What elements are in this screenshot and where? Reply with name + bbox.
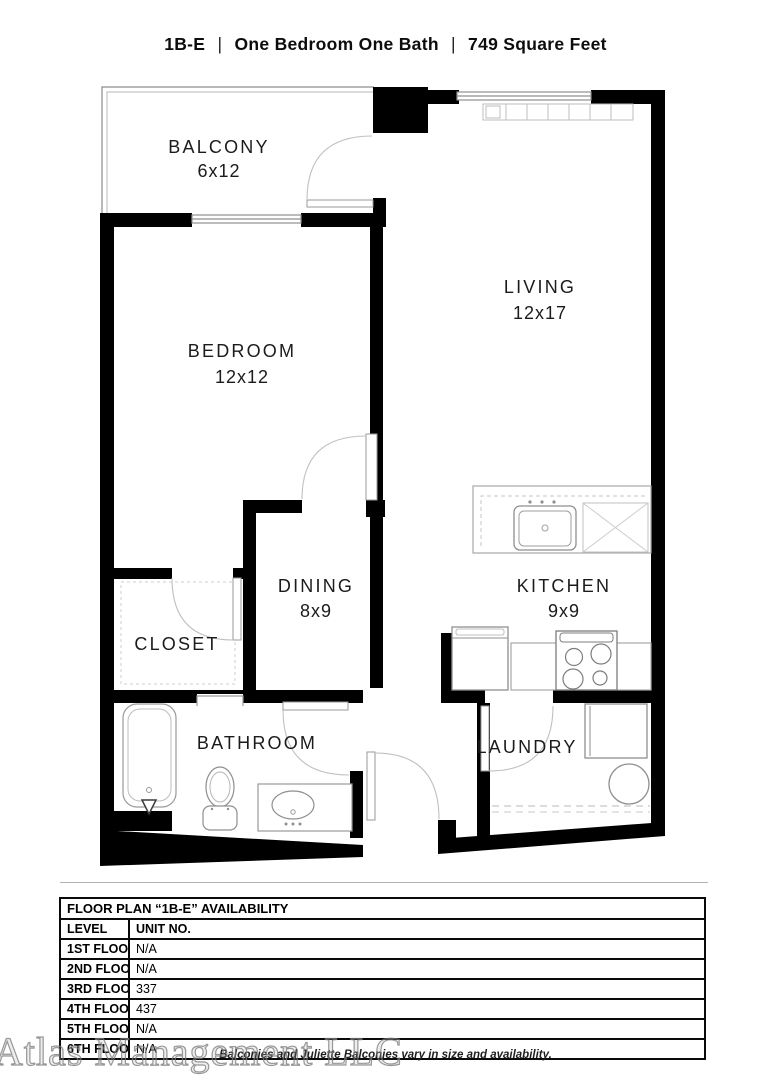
floor-plan-page: 1B-E | One Bedroom One Bath | 749 Square… <box>0 0 771 1080</box>
level-cell: 3RD FLOOR <box>60 979 129 999</box>
table-title-row: FLOOR PLAN “1B-E” AVAILABILITY <box>60 898 705 919</box>
room-label-bathroom: BATHROOM <box>197 733 317 753</box>
table-header-row: LEVEL UNIT NO. <box>60 919 705 939</box>
table-row: 5TH FLOOR N/A <box>60 1019 705 1039</box>
closet-shelf-lines <box>121 582 235 684</box>
table-row: 2ND FLOOR N/A <box>60 959 705 979</box>
level-cell: 1ST FLOOR <box>60 939 129 959</box>
availability-table: FLOOR PLAN “1B-E” AVAILABILITY LEVEL UNI… <box>59 897 706 1060</box>
wall <box>553 690 651 703</box>
stove <box>556 631 617 690</box>
unit-cell: N/A <box>129 959 705 979</box>
wall-closet <box>243 500 256 690</box>
column-header-unit: UNIT NO. <box>129 919 705 939</box>
room-dims-living: 12x17 <box>513 303 567 323</box>
wall <box>114 568 172 579</box>
closet-door <box>172 578 241 640</box>
wall <box>443 690 485 703</box>
column-header-level: LEVEL <box>60 919 129 939</box>
wall <box>373 90 459 104</box>
room-label-balcony: BALCONY <box>168 137 269 157</box>
room-dims-balcony: 6x12 <box>197 161 240 181</box>
room-label-dining: DINING <box>278 576 354 596</box>
balcony-door <box>307 136 373 207</box>
room-label-bedroom: BEDROOM <box>188 341 296 361</box>
room-dims-kitchen: 9x9 <box>548 601 580 621</box>
footer-disclaimer: Balconies and Juliette Balconies vary in… <box>0 1049 771 1061</box>
unit-cell: N/A <box>129 939 705 959</box>
walls <box>100 87 665 866</box>
wall-left <box>100 213 114 831</box>
room-label-living: LIVING <box>504 277 576 297</box>
bathroom-niche <box>197 694 243 706</box>
divider-rule <box>60 882 708 883</box>
wall-tub-step <box>114 811 172 831</box>
refrigerator <box>452 627 508 690</box>
bedroom-door <box>302 434 377 500</box>
bathtub <box>123 704 176 814</box>
room-dims-bedroom: 12x12 <box>215 367 269 387</box>
wall <box>373 198 386 227</box>
doors <box>172 136 553 820</box>
room-label-kitchen: KITCHEN <box>517 576 611 596</box>
laundry-fixtures <box>492 704 650 812</box>
table-row: 3RD FLOOR 337 <box>60 979 705 999</box>
level-cell: 5TH FLOOR <box>60 1019 129 1039</box>
unit-cell: N/A <box>129 1019 705 1039</box>
unit-cell: 337 <box>129 979 705 999</box>
dryer <box>609 764 649 804</box>
dishwasher <box>583 503 648 552</box>
wall-slanted-bathroom <box>100 830 363 866</box>
entry-door <box>367 752 439 820</box>
vanity-sink <box>258 784 352 831</box>
toilet <box>203 767 237 830</box>
room-label-closet: CLOSET <box>134 634 219 654</box>
room-label-laundry: LAUNDRY <box>476 737 577 757</box>
room-dims-dining: 8x9 <box>300 601 332 621</box>
level-cell: 2ND FLOOR <box>60 959 129 979</box>
unit-cell: 437 <box>129 999 705 1019</box>
table-row: 1ST FLOOR N/A <box>60 939 705 959</box>
table-row: 4TH FLOOR 437 <box>60 999 705 1019</box>
level-cell: 4TH FLOOR <box>60 999 129 1019</box>
washer <box>585 704 647 758</box>
wall-jamb <box>366 500 385 517</box>
wall <box>233 568 256 579</box>
wall-right <box>651 90 665 823</box>
window-bench <box>483 104 633 120</box>
table-title: FLOOR PLAN “1B-E” AVAILABILITY <box>60 898 705 919</box>
wall-slanted-laundry <box>438 822 665 854</box>
